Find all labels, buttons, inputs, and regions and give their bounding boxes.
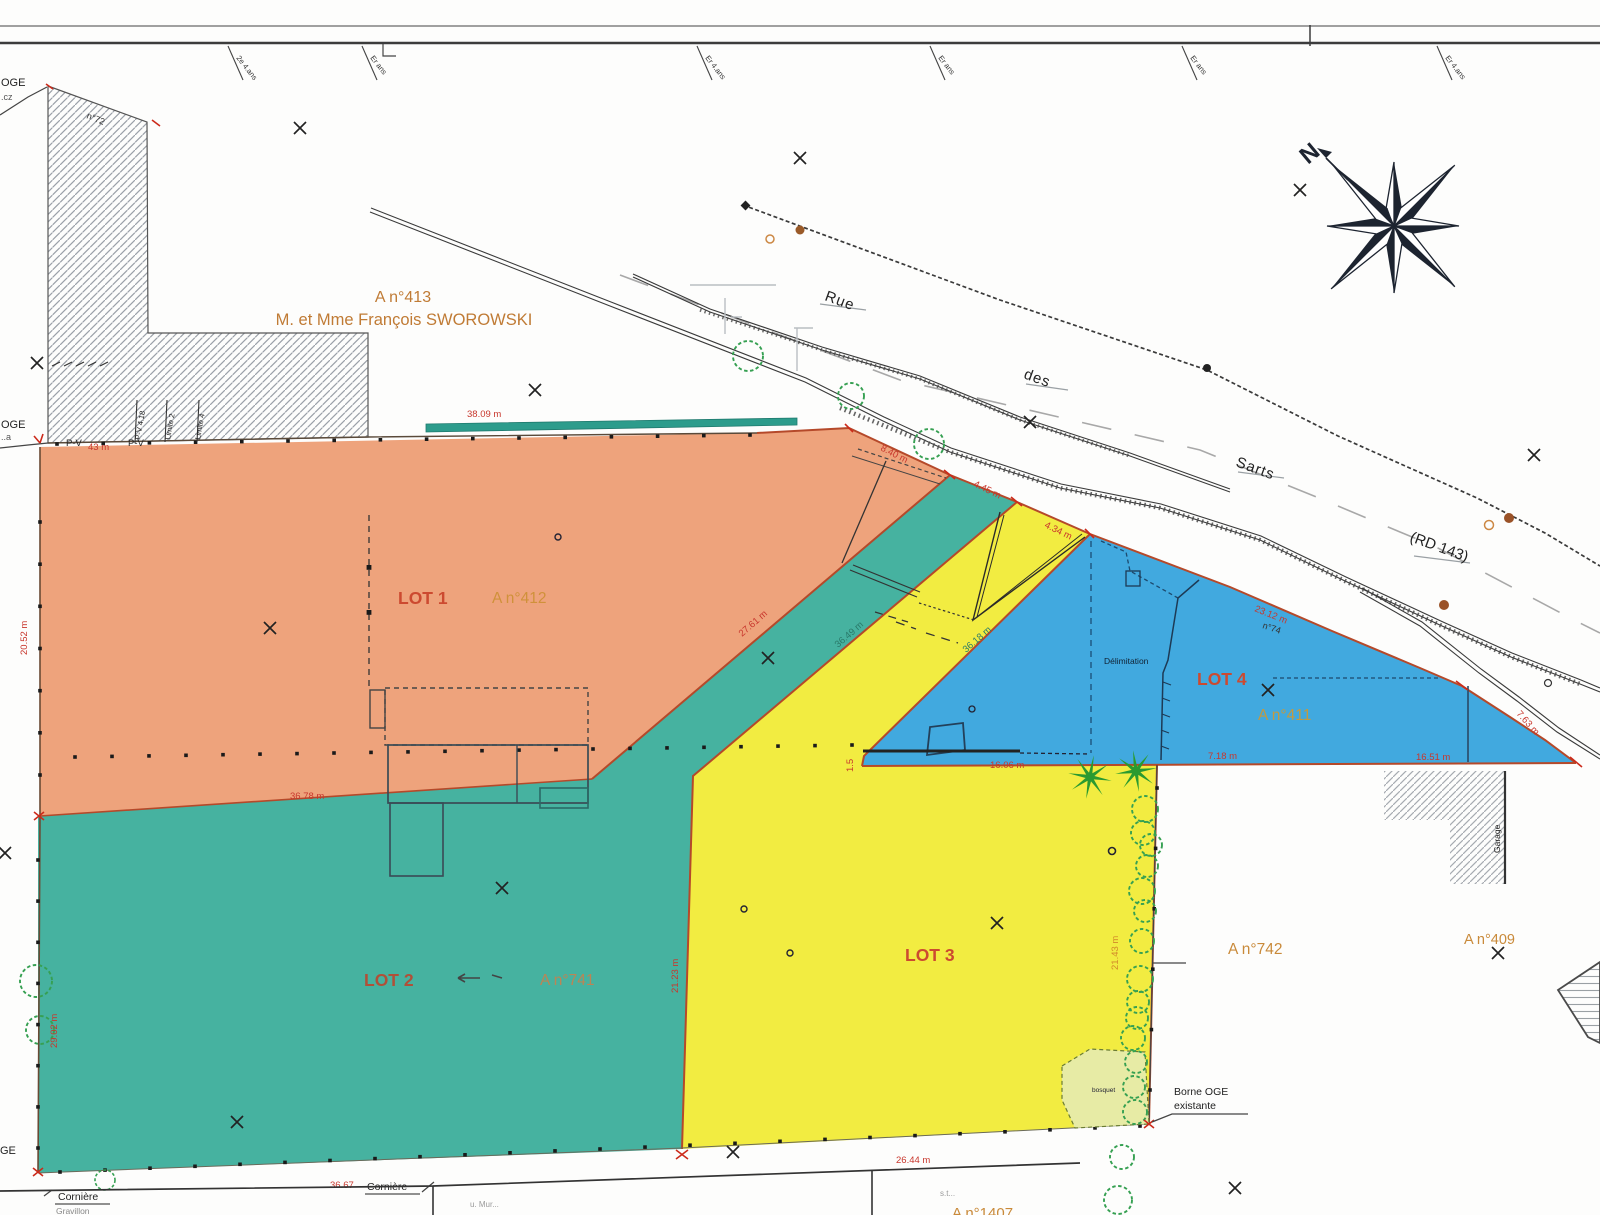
svg-text:A n°742: A n°742 bbox=[1228, 941, 1282, 958]
svg-text:M. et Mme François SWOROWSKI: M. et Mme François SWOROWSKI bbox=[276, 311, 533, 329]
svg-text:LOT 3: LOT 3 bbox=[905, 945, 955, 965]
svg-text:29.02 m: 29.02 m bbox=[49, 1014, 60, 1048]
svg-text:A n°741: A n°741 bbox=[540, 972, 594, 989]
svg-text:bosquet: bosquet bbox=[1092, 1087, 1115, 1094]
svg-text:21.43 m: 21.43 m bbox=[1110, 936, 1121, 970]
svg-text:7.18 m: 7.18 m bbox=[1208, 751, 1237, 762]
svg-text:s.t...: s.t... bbox=[940, 1189, 955, 1198]
svg-text:1.5: 1.5 bbox=[845, 759, 856, 772]
svg-text:20.52 m: 20.52 m bbox=[19, 621, 30, 655]
svg-text:Borne OGE: Borne OGE bbox=[1174, 1086, 1228, 1098]
svg-text:38.09 m: 38.09 m bbox=[467, 409, 501, 420]
svg-text:A n°411: A n°411 bbox=[1258, 707, 1311, 724]
svg-text:.cz: .cz bbox=[1, 92, 13, 102]
svg-text:Gravillon: Gravillon bbox=[56, 1206, 90, 1215]
svg-text:OGE: OGE bbox=[1, 419, 25, 431]
svg-text:21.23 m: 21.23 m bbox=[670, 959, 681, 993]
svg-text:A n°412: A n°412 bbox=[492, 590, 546, 607]
svg-text:43 m: 43 m bbox=[88, 442, 109, 453]
svg-text:LOT 4: LOT 4 bbox=[1197, 669, 1247, 689]
svg-text:P-V: P-V bbox=[66, 438, 83, 449]
svg-text:Garage: Garage bbox=[1492, 824, 1502, 853]
svg-text:A n°1407: A n°1407 bbox=[952, 1205, 1013, 1215]
svg-text:existante: existante bbox=[1174, 1100, 1216, 1112]
svg-text:GE: GE bbox=[0, 1145, 16, 1157]
svg-text:..a: ..a bbox=[1, 432, 11, 442]
svg-text:A n°409: A n°409 bbox=[1464, 932, 1515, 948]
svg-text:u. Mur...: u. Mur... bbox=[470, 1200, 499, 1209]
svg-text:Cornière: Cornière bbox=[58, 1191, 98, 1203]
svg-text:LOT 2: LOT 2 bbox=[364, 970, 414, 990]
svg-text:16.06 m: 16.06 m bbox=[990, 760, 1024, 771]
svg-text:26.44 m: 26.44 m bbox=[896, 1155, 930, 1166]
svg-text:OGE: OGE bbox=[1, 77, 25, 89]
svg-text:Délimitation: Délimitation bbox=[1104, 656, 1149, 666]
svg-text:36.67: 36.67 bbox=[330, 1180, 354, 1191]
svg-text:16.51 m: 16.51 m bbox=[1416, 752, 1450, 763]
svg-text:A n°413: A n°413 bbox=[375, 289, 431, 306]
svg-text:36.78 m: 36.78 m bbox=[290, 791, 324, 802]
svg-text:LOT 1: LOT 1 bbox=[398, 588, 448, 608]
